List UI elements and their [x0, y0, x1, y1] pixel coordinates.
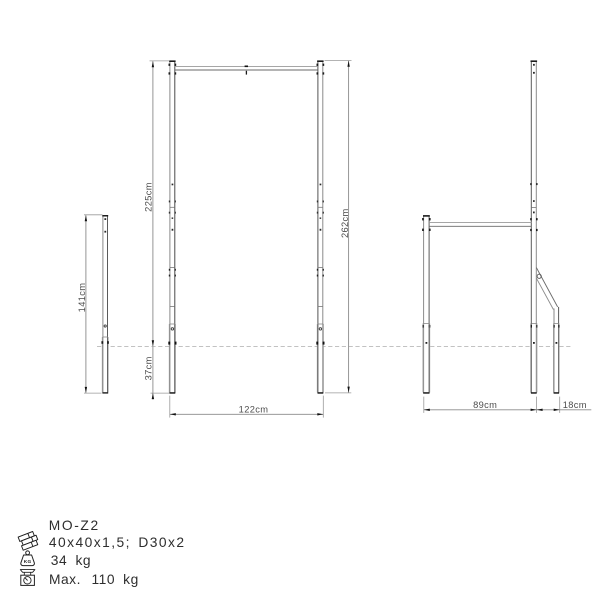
svg-text:89cm: 89cm: [473, 400, 497, 410]
svg-text:37cm: 37cm: [144, 356, 154, 380]
svg-text:225cm: 225cm: [143, 182, 153, 212]
svg-text:KG: KG: [24, 559, 32, 565]
svg-text:262cm: 262cm: [340, 208, 350, 238]
svg-text:18cm: 18cm: [563, 400, 587, 410]
svg-text:141cm: 141cm: [77, 283, 87, 313]
svg-text:122cm: 122cm: [239, 404, 269, 414]
